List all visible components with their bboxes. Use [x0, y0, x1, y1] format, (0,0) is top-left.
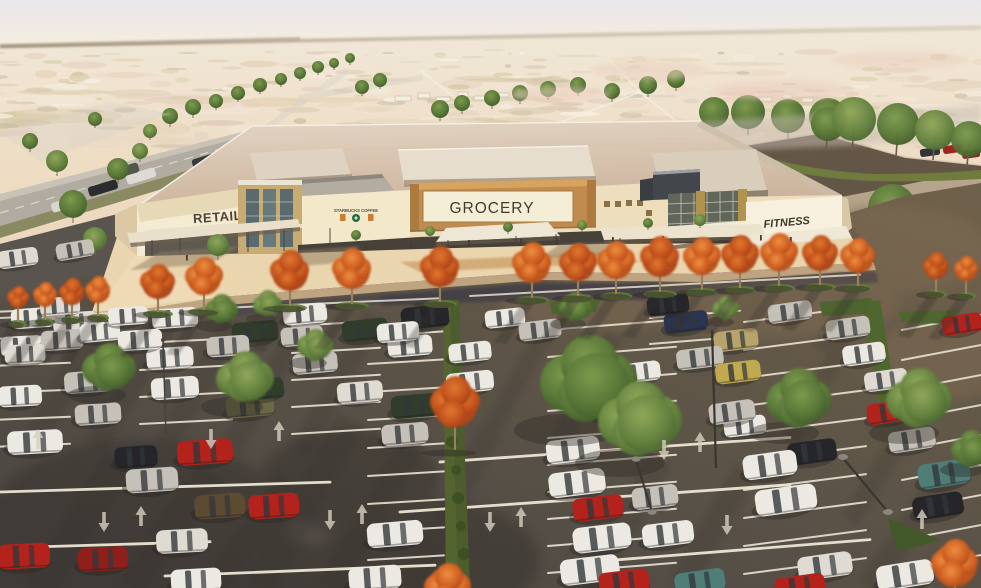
svg-text:STARBUCKS COFFEE: STARBUCKS COFFEE — [334, 208, 378, 213]
svg-text:GROCERY: GROCERY — [449, 200, 534, 217]
